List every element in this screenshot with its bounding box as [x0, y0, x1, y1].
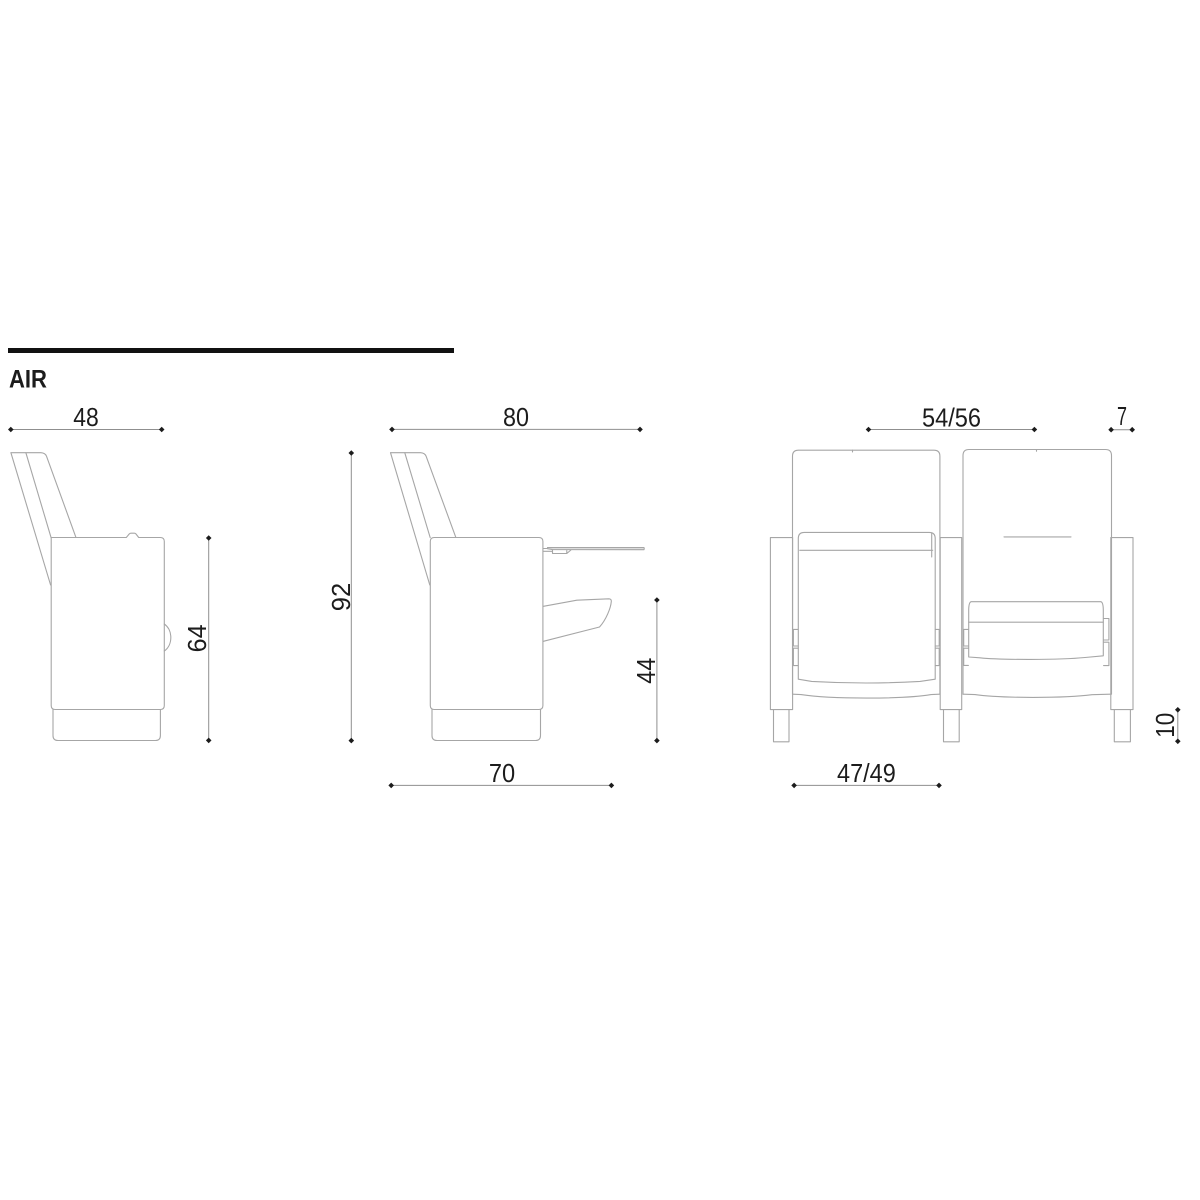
svg-text:7: 7	[1117, 401, 1127, 431]
svg-text:80: 80	[503, 402, 529, 432]
svg-text:47/49: 47/49	[837, 758, 896, 788]
svg-text:70: 70	[489, 758, 515, 788]
svg-text:54/56: 54/56	[922, 403, 981, 433]
svg-text:64: 64	[182, 624, 212, 652]
svg-text:92: 92	[326, 583, 356, 612]
svg-text:AIR: AIR	[9, 366, 47, 394]
svg-text:44: 44	[631, 658, 661, 684]
svg-text:10: 10	[1150, 713, 1180, 738]
svg-text:48: 48	[73, 402, 99, 432]
